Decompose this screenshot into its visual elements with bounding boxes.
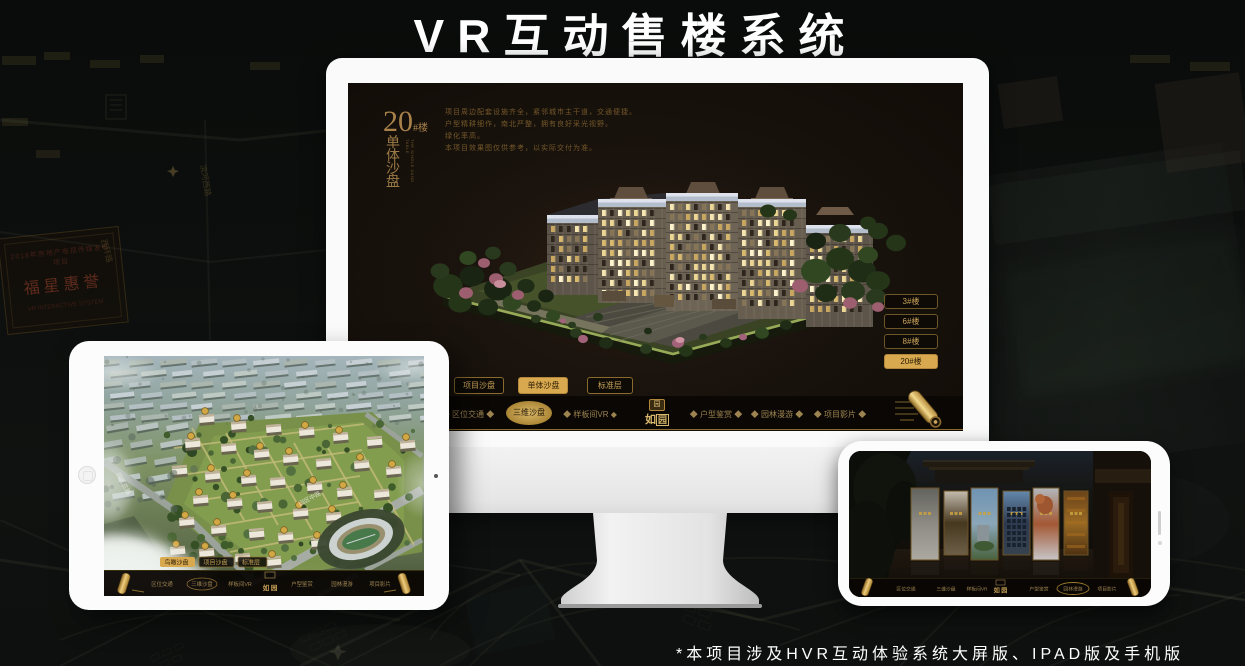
svg-text:区位交通: 区位交通 (896, 586, 915, 593)
svg-text:项目沙盘: 项目沙盘 (204, 559, 228, 567)
svg-text:如 园: 如 园 (994, 587, 1008, 595)
svg-text:标准层: 标准层 (242, 559, 260, 567)
svg-text:样板间VR: 样板间VR (966, 586, 988, 593)
svg-text:园林漫游: 园林漫游 (1063, 586, 1082, 593)
svg-text:样板间VR: 样板间VR (228, 580, 252, 588)
svg-text:区位交通: 区位交通 (151, 580, 173, 588)
svg-text:项目影片: 项目影片 (1097, 586, 1116, 593)
svg-text:户型鉴赏: 户型鉴赏 (1029, 586, 1048, 593)
svg-text:园林漫游: 园林漫游 (331, 580, 353, 588)
svg-text:西环路: 西环路 (99, 238, 115, 264)
svg-text:项目影片: 项目影片 (369, 580, 391, 588)
svg-text:鸟瞰沙盘: 鸟瞰沙盘 (165, 559, 189, 567)
svg-text:如 园: 如 园 (263, 583, 278, 592)
svg-text:滨河西路: 滨河西路 (198, 164, 213, 197)
svg-text:三维沙盘: 三维沙盘 (936, 586, 955, 593)
svg-text:三维沙盘: 三维沙盘 (191, 580, 213, 588)
svg-text:户型鉴赏: 户型鉴赏 (291, 580, 313, 588)
